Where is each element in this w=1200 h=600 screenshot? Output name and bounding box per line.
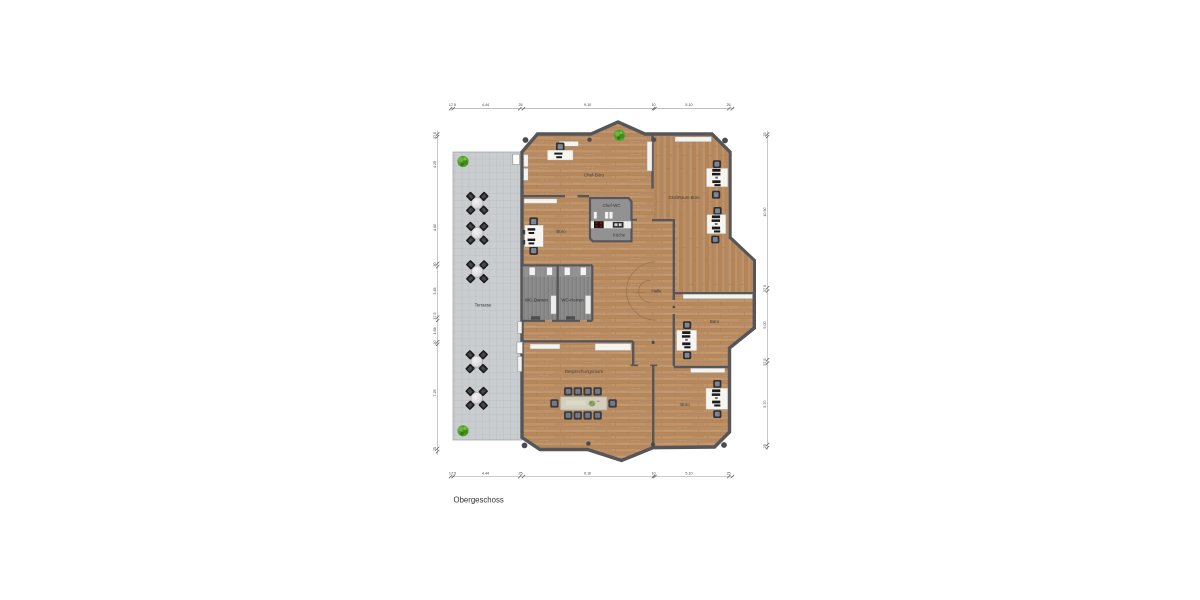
svg-text:25: 25 xyxy=(518,472,522,476)
svg-text:Terrasse: Terrasse xyxy=(475,302,492,307)
svg-text:3.45: 3.45 xyxy=(433,287,437,294)
svg-text:Küche: Küche xyxy=(613,232,626,237)
svg-text:Chef-Büro: Chef-Büro xyxy=(584,173,605,178)
svg-text:25: 25 xyxy=(726,103,730,107)
svg-text:25: 25 xyxy=(433,447,437,451)
svg-text:9.10: 9.10 xyxy=(584,472,591,476)
svg-text:25: 25 xyxy=(763,444,767,448)
svg-text:Büro: Büro xyxy=(680,402,690,407)
svg-text:37.5: 37.5 xyxy=(433,312,437,319)
svg-text:Obergeschoss: Obergeschoss xyxy=(454,495,504,504)
svg-text:Büro: Büro xyxy=(710,319,720,324)
svg-text:37.5: 37.5 xyxy=(433,132,437,139)
svg-text:20: 20 xyxy=(433,340,437,344)
svg-text:4.44: 4.44 xyxy=(482,472,489,476)
svg-text:9.10: 9.10 xyxy=(584,103,591,107)
svg-text:Chef-WC: Chef-WC xyxy=(602,203,620,208)
svg-text:10: 10 xyxy=(651,103,655,107)
svg-text:GroßRaum-Büro: GroßRaum-Büro xyxy=(669,195,701,200)
svg-text:Halle: Halle xyxy=(651,288,662,293)
svg-text:5.10: 5.10 xyxy=(685,472,692,476)
svg-text:17.5: 17.5 xyxy=(449,472,456,476)
svg-text:4.60: 4.60 xyxy=(433,224,437,231)
svg-text:37.5: 37.5 xyxy=(763,358,767,365)
svg-text:Büro: Büro xyxy=(556,229,566,234)
svg-text:37.5: 37.5 xyxy=(763,285,767,292)
svg-text:WC-Herren: WC-Herren xyxy=(561,297,584,302)
svg-text:4.25: 4.25 xyxy=(433,161,437,168)
svg-text:Besprechungsraum: Besprechungsraum xyxy=(565,369,603,374)
svg-text:5.00: 5.00 xyxy=(763,321,767,328)
svg-text:1.58: 1.58 xyxy=(433,327,437,334)
svg-text:17.5: 17.5 xyxy=(449,103,456,107)
svg-text:WC-Damen: WC-Damen xyxy=(525,297,548,302)
svg-text:30: 30 xyxy=(433,262,437,266)
svg-text:7.25: 7.25 xyxy=(433,389,437,396)
svg-text:25: 25 xyxy=(518,103,522,107)
svg-text:4.44: 4.44 xyxy=(482,103,489,107)
svg-text:10.90: 10.90 xyxy=(763,207,767,216)
svg-text:25: 25 xyxy=(726,472,730,476)
svg-text:5.70: 5.70 xyxy=(763,400,767,407)
svg-text:5.10: 5.10 xyxy=(685,103,692,107)
svg-text:10: 10 xyxy=(651,472,655,476)
svg-text:25: 25 xyxy=(763,132,767,136)
